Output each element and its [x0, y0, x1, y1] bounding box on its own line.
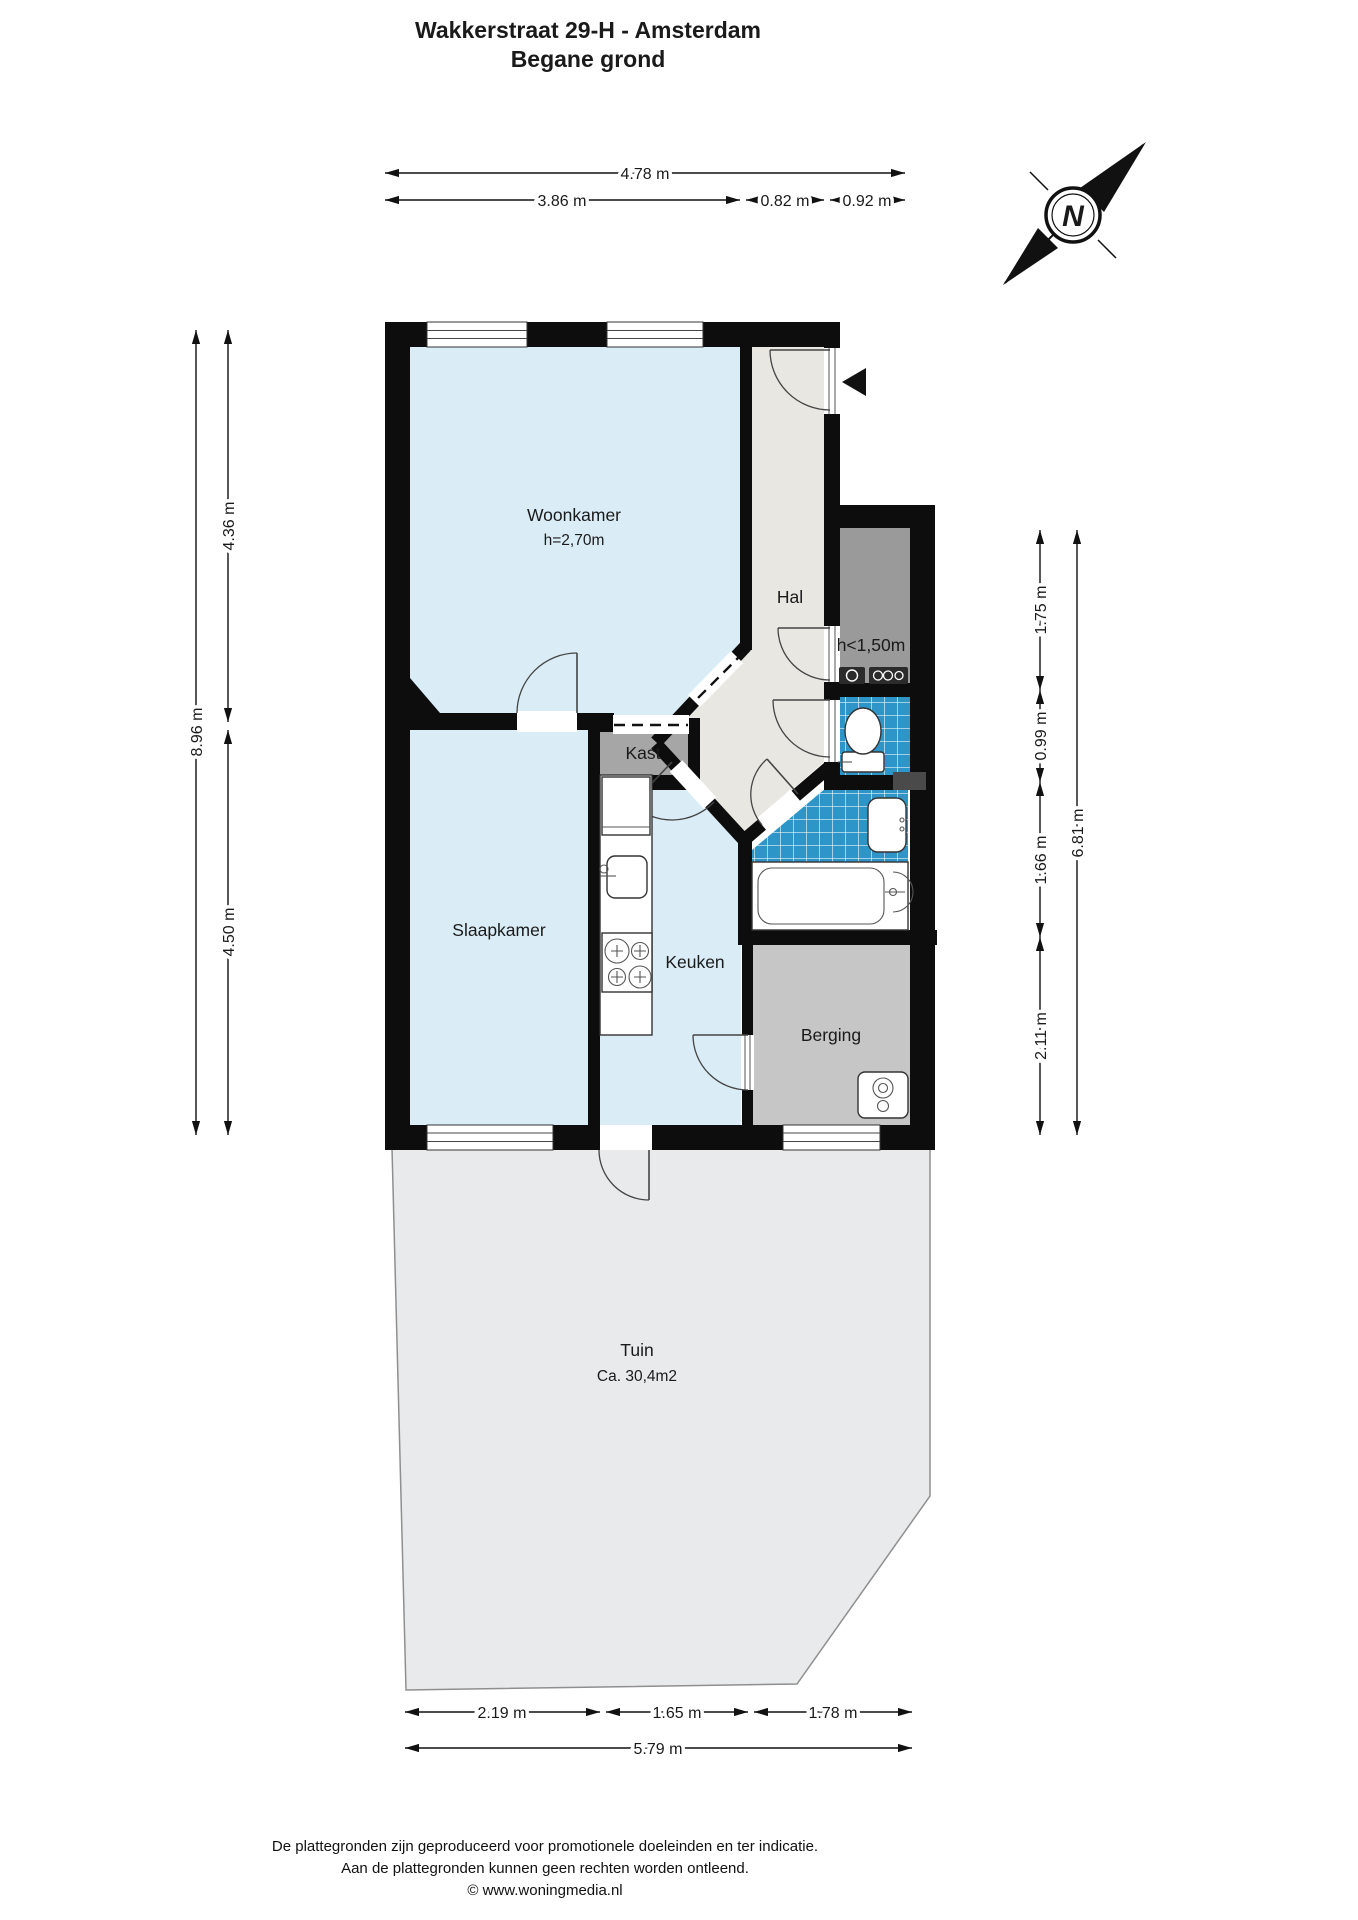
- floorplan-page: Wakkerstraat 29-H - Amsterdam Begane gro…: [0, 0, 1358, 1920]
- label-kast: Kast: [625, 743, 660, 763]
- window-woonkamer-right: [607, 322, 703, 347]
- stove-icon: [602, 933, 652, 992]
- dim-right-seg-2: 0.99 m: [1033, 690, 1050, 782]
- meter-icons: [839, 667, 908, 684]
- label-tuin-area: Ca. 30,4m2: [597, 1368, 677, 1385]
- footer-line-2: Aan de plattegronden kunnen geen rechten…: [272, 1858, 818, 1880]
- washbasin-icon: [868, 798, 906, 852]
- window-berging: [783, 1125, 880, 1150]
- floorplan-svg: Woonkamer h=2,70m Hal h<1,50m Kast Slaap…: [0, 0, 1358, 1920]
- dim-right-total: 6.81 m: [1070, 530, 1087, 1135]
- compass-icon: N: [1003, 142, 1146, 285]
- footer-line-1: De plattegronden zijn geproduceerd voor …: [272, 1836, 818, 1858]
- label-slaapkamer: Slaapkamer: [452, 920, 546, 940]
- label-berging: Berging: [801, 1025, 861, 1045]
- dim-top-seg-1: 3.86 m: [385, 193, 740, 210]
- dim-right-seg-1: 1.75 m: [1033, 530, 1050, 690]
- svg-text:4.50 m: 4.50 m: [221, 908, 238, 957]
- dim-top-seg-3: 0.92 m: [830, 193, 905, 210]
- sink-icon: [600, 856, 647, 898]
- dim-top-total: 4.78 m: [385, 166, 905, 183]
- svg-text:4.78 m: 4.78 m: [621, 166, 670, 183]
- entrance-arrow-icon: [842, 368, 866, 396]
- label-hal: Hal: [777, 587, 803, 607]
- svg-text:1.78 m: 1.78 m: [809, 1705, 858, 1722]
- svg-text:8.96 m: 8.96 m: [189, 708, 206, 757]
- dim-left-seg-2: 4.50 m: [221, 730, 238, 1135]
- dim-bottom-seg-3: 1.78 m: [754, 1705, 912, 1722]
- svg-text:1.75 m: 1.75 m: [1033, 586, 1050, 635]
- label-woonkamer: Woonkamer: [527, 505, 621, 525]
- tuin-area: [392, 1148, 930, 1690]
- dim-bottom-seg-1: 2.19 m: [405, 1705, 600, 1722]
- label-tuin: Tuin: [620, 1340, 653, 1360]
- svg-text:2.11 m: 2.11 m: [1033, 1012, 1050, 1060]
- svg-text:1.66 m: 1.66 m: [1033, 836, 1050, 885]
- svg-text:0.92 m: 0.92 m: [843, 193, 892, 210]
- svg-text:4.36 m: 4.36 m: [221, 502, 238, 551]
- svg-text:3.86 m: 3.86 m: [538, 193, 587, 210]
- dim-top-seg-2: 0.82 m: [746, 193, 824, 210]
- dim-right-seg-3: 1.66 m: [1033, 782, 1050, 937]
- dim-bottom-seg-2: 1.65 m: [606, 1705, 748, 1722]
- dim-bottom-total: 5.79 m: [405, 1741, 912, 1758]
- svg-text:0.99 m: 0.99 m: [1033, 712, 1050, 761]
- svg-text:6.81 m: 6.81 m: [1070, 809, 1087, 858]
- compass-north-label: N: [1062, 200, 1085, 233]
- boiler-icon: [858, 1072, 908, 1118]
- label-low-height: h<1,50m: [837, 635, 906, 655]
- window-slaapkamer: [427, 1125, 553, 1150]
- svg-text:2.19 m: 2.19 m: [478, 1705, 527, 1722]
- label-keuken: Keuken: [665, 952, 724, 972]
- kitchen-counter: [600, 775, 652, 1035]
- footer-disclaimer: De plattegronden zijn geproduceerd voor …: [272, 1836, 818, 1902]
- label-woonkamer-height: h=2,70m: [544, 532, 605, 549]
- shaft: [893, 772, 926, 790]
- room-low-height: [840, 528, 910, 683]
- footer-line-3: © www.woningmedia.nl: [272, 1880, 818, 1902]
- svg-text:5.79 m: 5.79 m: [634, 1741, 683, 1758]
- dim-left-total: 8.96 m: [189, 330, 206, 1135]
- dim-left-seg-1: 4.36 m: [221, 330, 238, 722]
- svg-text:0.82 m: 0.82 m: [761, 193, 810, 210]
- window-woonkamer-left: [427, 322, 527, 347]
- svg-text:1.65 m: 1.65 m: [653, 1705, 702, 1722]
- dim-right-seg-4: 2.11 m: [1033, 937, 1050, 1135]
- cabinet-icon: [602, 777, 650, 835]
- bathtub-icon: [752, 862, 913, 930]
